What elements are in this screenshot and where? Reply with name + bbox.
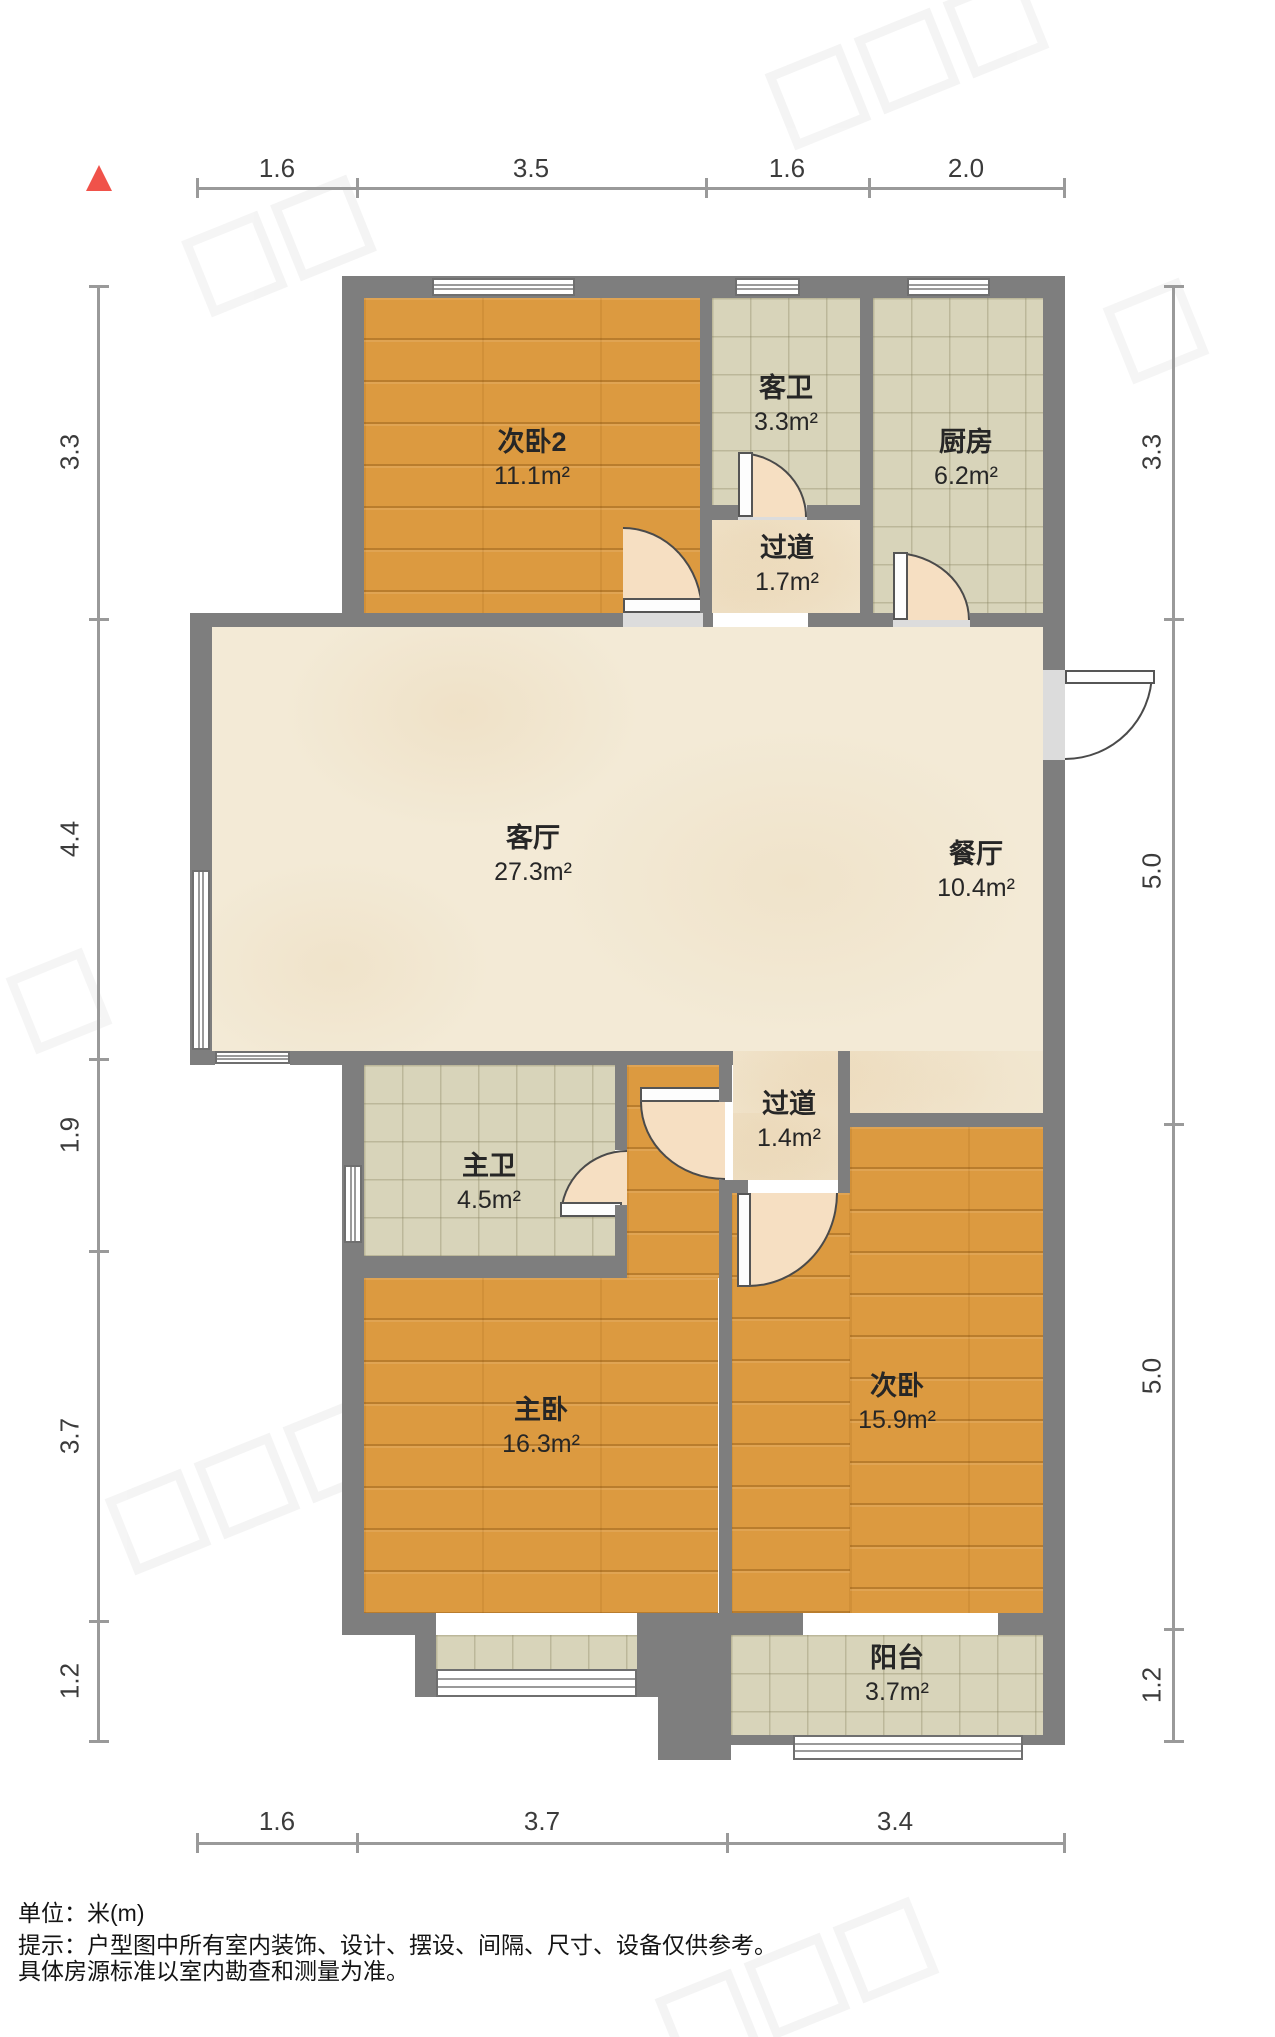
room-area: 10.4m² [937,872,1015,906]
dim-label-top: 3.5 [513,153,549,184]
room-name: 阳台 [865,1640,929,1676]
window-balcony-icon [793,1735,1023,1760]
wall-segment [719,1180,732,1613]
door-leaf-guest-bath [738,452,753,517]
dim-label-bottom: 3.7 [524,1806,560,1837]
room-area: 27.3m² [494,856,572,890]
watermark-logo [765,0,1050,150]
dim-tick [89,618,109,621]
wall-segment [415,1613,436,1697]
wall-segment [807,505,860,520]
room-area: 1.7m² [755,566,819,600]
wall-segment [658,1613,731,1760]
room-name: 主卫 [457,1148,521,1184]
room-area: 3.3m² [754,406,818,440]
dim-tick [196,1833,199,1853]
room-label-balcony: 阳台 3.7m² [865,1640,929,1710]
window-bay-icon [436,1669,637,1697]
dim-label-left: 1.9 [55,1117,86,1153]
dim-label-top: 2.0 [948,153,984,184]
wall-segment [838,1180,850,1193]
window-master-bath-icon [344,1165,362,1243]
dim-tick [89,285,109,288]
dim-line-top [197,187,1065,190]
wall-segment [700,298,712,613]
dim-label-top: 1.6 [769,153,805,184]
watermark-logo [1103,278,1210,385]
footer-unit-note: 单位：米(m) [18,1894,144,1928]
wall-segment [712,505,738,520]
room-name: 客卫 [754,370,818,406]
dim-tick [89,1250,109,1253]
dim-tick [196,178,199,198]
floor-plan-page: 次卧2 11.1m² 客卫 3.3m² 厨房 6.2m² 过道 1.7m² 客厅… [0,0,1275,2037]
watermark-logo [655,1897,940,2037]
dim-label-right: 5.0 [1137,853,1168,889]
door-arc-entry [1065,672,1153,760]
wall-segment [615,1065,627,1150]
dim-tick [89,1058,109,1061]
wall-segment [808,613,893,627]
wall-segment [342,276,364,627]
wall-segment [970,613,1043,627]
dim-tick [356,178,359,198]
room-name: 主卧 [502,1392,580,1428]
door-leaf-bedroom [737,1193,751,1287]
wall-segment [731,1613,803,1635]
room-name: 餐厅 [937,836,1015,872]
dim-label-left: 1.2 [55,1663,86,1699]
wall-segment [850,1113,1043,1127]
door-leaf-kitchen [893,552,908,620]
wall-segment [860,298,873,613]
wall-segment [190,1051,215,1065]
north-arrow-icon [86,165,112,191]
room-name: 客厅 [494,820,572,856]
window-living-corner-icon [215,1051,290,1064]
room-area: 11.1m² [494,460,570,494]
wall-segment [364,1613,415,1635]
room-label-guest-bath: 客卫 3.3m² [754,370,818,440]
wall-segment [731,1735,793,1745]
wall-segment [703,613,713,627]
room-area: 15.9m² [858,1404,936,1438]
threshold [623,613,703,627]
dim-label-left: 3.3 [55,434,86,470]
floor-bay-window [436,1635,637,1671]
dim-label-right: 1.2 [1137,1667,1168,1703]
wall-segment [615,1205,627,1256]
door-leaf-master-bedroom [640,1087,725,1102]
wall-segment [364,1256,627,1278]
floor-living-dining [212,627,1043,1051]
room-name: 次卧 [858,1368,936,1404]
dim-label-bottom: 1.6 [259,1806,295,1837]
room-label-hallway-upper: 过道 1.7m² [755,530,819,600]
dim-tick [1063,1833,1066,1853]
room-name: 过道 [755,530,819,566]
wall-segment [998,1613,1043,1635]
wall-segment [190,613,623,627]
room-area: 16.3m² [502,1428,580,1462]
wall-segment [342,1051,733,1065]
dim-tick [1164,285,1184,288]
dim-label-top: 1.6 [259,153,295,184]
room-label-living: 客厅 27.3m² [494,820,572,890]
dim-label-right: 3.3 [1137,434,1168,470]
window-bedroom2-icon [432,278,575,296]
dim-line-right [1172,286,1175,1742]
room-label-dining: 餐厅 10.4m² [937,836,1015,906]
dim-tick [868,178,871,198]
dim-tick [1164,618,1184,621]
window-living-left-icon [192,870,210,1050]
dim-line-left [97,286,100,1742]
room-label-bedroom: 次卧 15.9m² [858,1368,936,1438]
dim-tick [1164,1123,1184,1126]
door-leaf-master-bath [560,1202,622,1217]
dim-tick [1164,1628,1184,1631]
wall-segment [1043,760,1065,1745]
threshold-entry [1043,670,1065,760]
dim-label-left: 4.4 [55,821,86,857]
dim-tick [89,1740,109,1743]
wall-segment [1043,276,1065,670]
room-area: 1.4m² [757,1122,821,1156]
window-guest-bath-icon [735,278,800,296]
dim-tick [726,1833,729,1853]
wall-segment [342,1051,364,1635]
dim-tick [1063,178,1066,198]
room-label-bedroom2: 次卧2 11.1m² [494,424,570,494]
room-label-master-bath: 主卫 4.5m² [457,1148,521,1218]
room-area: 3.7m² [865,1676,929,1710]
dim-line-bottom [197,1842,1065,1845]
room-label-kitchen: 厨房 6.2m² [934,424,998,494]
room-area: 6.2m² [934,460,998,494]
wall-segment [838,1051,850,1193]
door-leaf-entry [1065,670,1155,684]
wall-segment [1023,1735,1043,1745]
room-name: 次卧2 [494,424,570,460]
room-area: 4.5m² [457,1184,521,1218]
dim-tick [705,178,708,198]
dim-label-right: 5.0 [1137,1358,1168,1394]
dim-label-bottom: 3.4 [877,1806,913,1837]
room-name: 厨房 [934,424,998,460]
room-label-hallway-lower: 过道 1.4m² [757,1086,821,1156]
wall-segment [637,1613,658,1697]
window-kitchen-icon [907,278,990,296]
dim-tick [356,1833,359,1853]
dim-tick [1164,1740,1184,1743]
wall-segment [719,1051,732,1102]
room-label-master-bedroom: 主卧 16.3m² [502,1392,580,1462]
wall-segment [731,1180,748,1193]
dim-tick [89,1620,109,1623]
door-leaf-bedroom2 [623,598,703,613]
footer-disclaimer-line2: 具体房源标准以室内勘查和测量为准。 [18,1952,409,1986]
room-name: 过道 [757,1086,821,1122]
dim-label-left: 3.7 [55,1418,86,1454]
